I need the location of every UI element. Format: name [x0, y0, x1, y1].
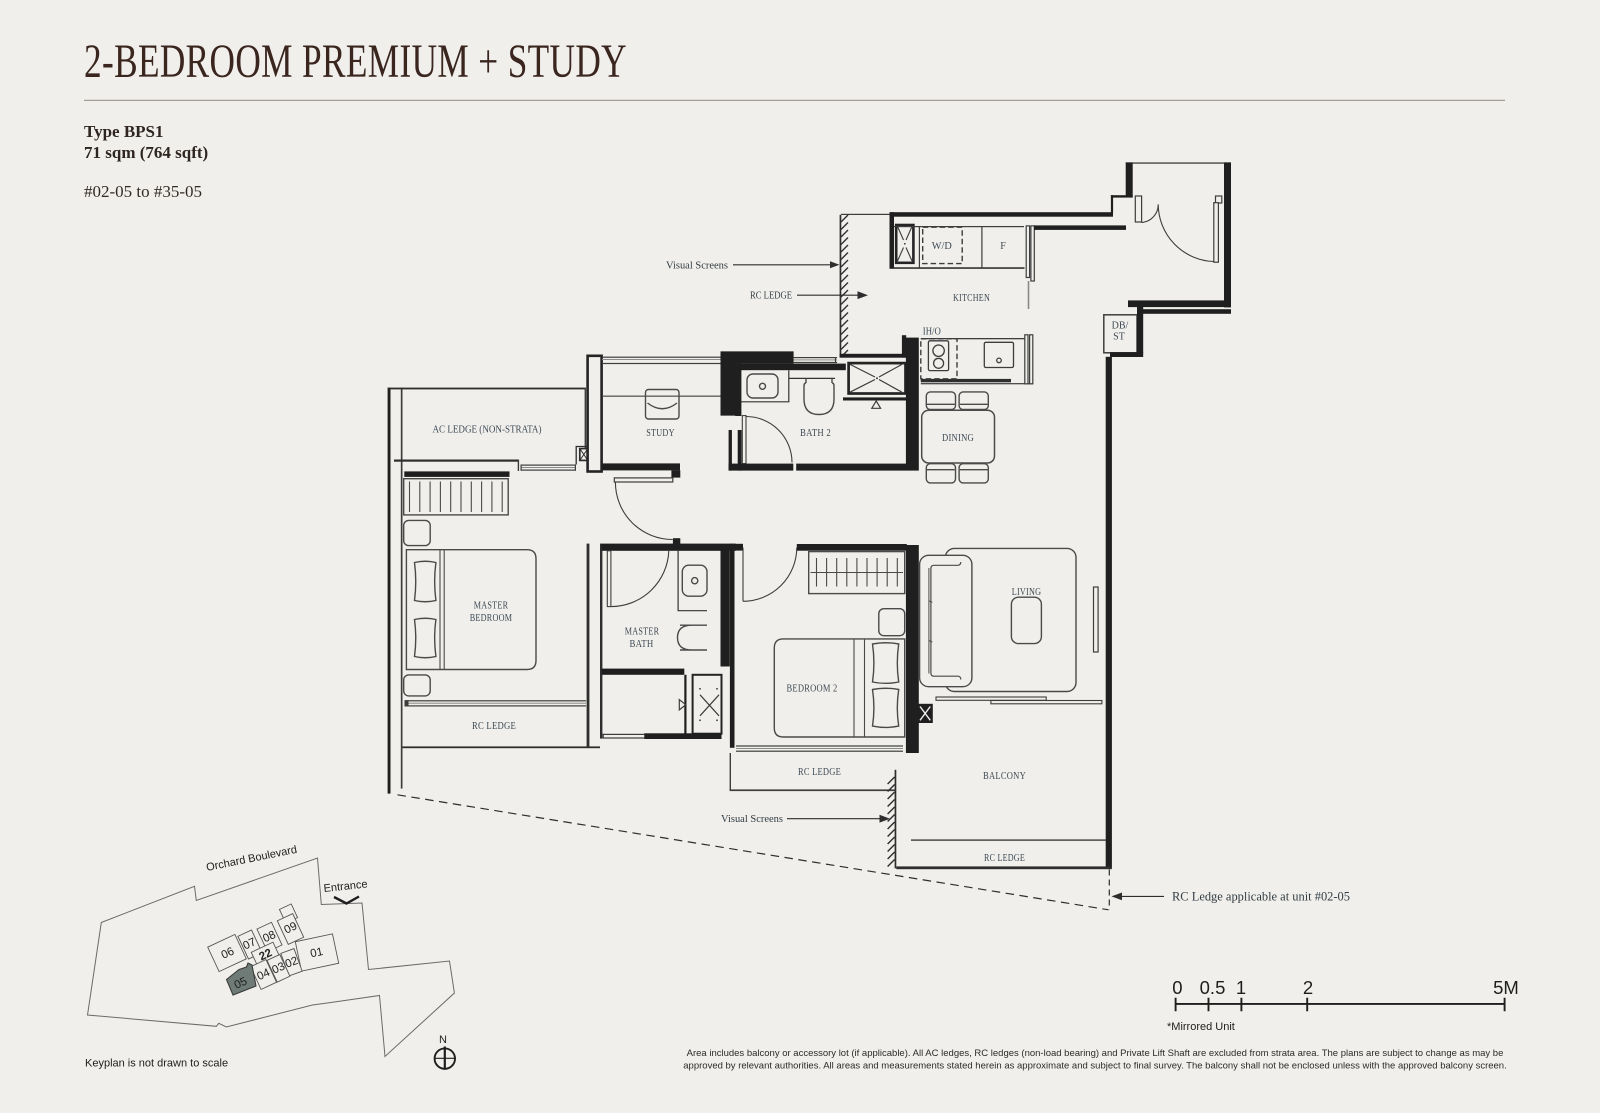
svg-text:2: 2 — [1303, 977, 1313, 998]
svg-text:Keyplan is not drawn to scale: Keyplan is not drawn to scale — [85, 1058, 228, 1070]
svg-text:N: N — [439, 1034, 447, 1046]
svg-text:RC LEDGE: RC LEDGE — [798, 766, 841, 778]
svg-text:RC LEDGE: RC LEDGE — [472, 720, 516, 732]
svg-text:71 sqm (764 sqft): 71 sqm (764 sqft) — [84, 143, 208, 162]
svg-text:5M: 5M — [1493, 977, 1519, 998]
svg-text:2-BEDROOM PREMIUM + STUDY: 2-BEDROOM PREMIUM + STUDY — [84, 35, 627, 88]
svg-text:Visual Screens: Visual Screens — [666, 259, 728, 271]
svg-text:AC LEDGE (NON-STRATA): AC LEDGE (NON-STRATA) — [433, 425, 542, 436]
svg-text:DB/: DB/ — [1112, 321, 1129, 332]
svg-text:MASTER: MASTER — [625, 626, 660, 638]
svg-text:0.5: 0.5 — [1200, 977, 1226, 998]
svg-text:0: 0 — [1172, 977, 1182, 998]
svg-text:approved by relevant authoriti: approved by relevant authorities. All ar… — [683, 1061, 1506, 1072]
svg-text:Type BPS1: Type BPS1 — [84, 122, 164, 141]
svg-text:*Mirrored Unit: *Mirrored Unit — [1167, 1021, 1235, 1033]
svg-text:W/D: W/D — [932, 241, 952, 252]
svg-text:BEDROOM 2: BEDROOM 2 — [787, 683, 838, 695]
svg-text:ST: ST — [1113, 332, 1125, 343]
svg-text:Area includes balcony or acces: Area includes balcony or accessory lot (… — [687, 1048, 1504, 1059]
svg-text:BATH 2: BATH 2 — [800, 427, 831, 439]
svg-text:F: F — [1000, 241, 1006, 252]
svg-text:IH/O: IH/O — [923, 326, 941, 337]
svg-text:Visual Screens: Visual Screens — [721, 813, 783, 825]
svg-text:KITCHEN: KITCHEN — [953, 292, 990, 304]
svg-text:DINING: DINING — [942, 432, 974, 444]
svg-text:MASTER: MASTER — [474, 600, 509, 612]
svg-text:STUDY: STUDY — [646, 427, 675, 439]
svg-text:RC LEDGE: RC LEDGE — [984, 852, 1025, 864]
svg-text:LIVING: LIVING — [1012, 586, 1042, 598]
svg-text:BEDROOM: BEDROOM — [470, 612, 513, 624]
svg-text:#02-05 to #35-05: #02-05 to #35-05 — [84, 182, 202, 201]
svg-text:1: 1 — [1236, 977, 1246, 998]
svg-text:BALCONY: BALCONY — [983, 770, 1026, 782]
svg-text:RC LEDGE: RC LEDGE — [750, 290, 792, 302]
svg-text:RC Ledge applicable at unit #0: RC Ledge applicable at unit #02-05 — [1172, 890, 1350, 904]
svg-text:BATH: BATH — [630, 638, 654, 650]
